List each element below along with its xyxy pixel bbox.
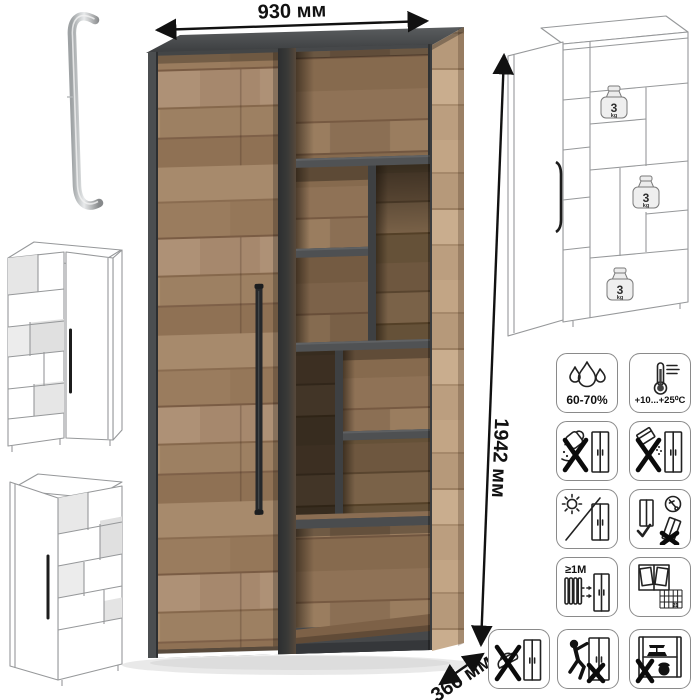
no-iron-icon [488,629,550,689]
humidity-icon: 60-70% [556,353,618,413]
humidity-label: 60-70% [566,394,607,406]
height-dimension-label: 1942 мм [486,418,512,498]
no-liquids-icon [556,421,618,481]
wireframe-open-door-view [10,474,122,686]
anvil-glyph [647,645,667,656]
heater-distance-icon: ≥1М [556,557,618,617]
no-direct-sunlight-icon [556,489,618,549]
no-overload-icon [629,629,691,689]
height-dimension-arrow [481,55,504,645]
handle-detail-drawing [67,16,99,206]
no-climbing-icon [557,629,619,689]
ventilation-icon: 21 [629,557,691,617]
wireframe-internal-structure: 3 kg 3 kg 3 kg [508,16,688,336]
weight-unit: kg [617,295,623,301]
main-product-render [122,27,478,675]
product-sheet: 3 kg 3 kg 3 kg [0,0,694,700]
center-partition [278,48,296,655]
weight-unit: kg [643,203,649,209]
heater-distance-label: ≥1М [565,564,586,576]
temperature-icon: +10...+25⁰С [629,353,691,413]
width-dimension-label: 930 мм [257,0,326,25]
temperature-label: +10...+25⁰С [635,396,686,406]
no-powder-icon [629,421,691,481]
wireframe-mirrored-view [8,242,122,452]
transport-upright-icon [629,489,691,549]
ventilation-days-label: 21 [673,603,679,609]
weight-unit: kg [611,113,617,119]
